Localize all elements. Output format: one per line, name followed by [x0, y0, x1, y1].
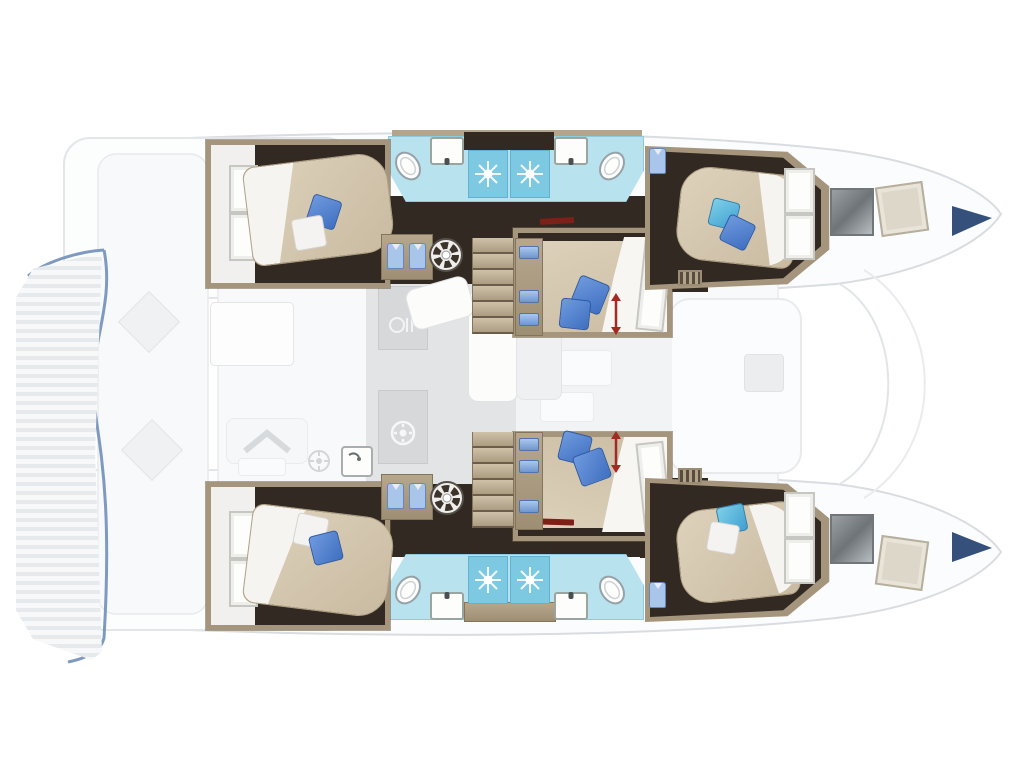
galley-faucet-icon	[343, 448, 371, 475]
chevron-icon	[227, 419, 307, 463]
shirt-locker-icon	[649, 582, 666, 608]
galley-sink	[341, 446, 373, 477]
white-pillow	[290, 214, 327, 251]
hull-window-upper	[830, 188, 874, 236]
lower-sink-left	[430, 592, 464, 620]
lower-toilet-right	[590, 568, 634, 612]
towel-shelf-item	[519, 500, 539, 513]
deck-arc-outer	[864, 270, 925, 498]
blue-pillow	[559, 298, 592, 331]
towel-shelf-item	[519, 246, 539, 259]
upper-sink-right	[554, 137, 588, 165]
wardrobe-shirt	[387, 483, 404, 509]
lower-sink-right	[554, 592, 588, 620]
red-wall-marker-lower	[540, 518, 574, 525]
deck-arc-inner	[838, 283, 888, 485]
lower-left-cabin	[206, 482, 390, 630]
shower-head-icon	[511, 151, 549, 197]
catamaran-floor-plan	[0, 0, 1024, 768]
galley-counter-bottom	[378, 390, 428, 464]
bench-table	[238, 458, 286, 476]
exterior-grill-burner-icon	[306, 448, 332, 474]
companionway-stairs-upper	[472, 238, 514, 334]
lower-toilet-left	[386, 568, 430, 612]
upper-sink-left	[430, 137, 464, 165]
hull-window-lower	[830, 514, 874, 564]
cabin-door-panel	[784, 538, 815, 584]
towel-shelf-item	[519, 438, 539, 451]
cabin-door-panel	[784, 214, 815, 260]
deck-hatch-lower	[875, 535, 929, 591]
upper-toilet-left	[386, 144, 430, 188]
upper-left-cabin	[206, 140, 390, 288]
lower-right-cabin	[645, 478, 835, 622]
shower-head-icon	[511, 557, 549, 603]
deck-hatch-upper	[875, 181, 929, 237]
saloon-chaise-ghost	[516, 330, 562, 400]
upper-shower-lintel	[464, 132, 554, 150]
slatted-platform	[16, 248, 102, 660]
side-deck-ghost	[98, 154, 208, 614]
shower-head-icon	[469, 557, 507, 603]
towel-shelf-item	[519, 460, 539, 473]
shirt-locker-icon	[649, 148, 666, 174]
red-adjust-arrow	[609, 293, 623, 335]
burner-icon	[379, 391, 427, 463]
lower-shower-left	[468, 556, 508, 604]
white-pillow	[706, 521, 741, 556]
towel-shelf-item	[519, 313, 539, 326]
lower-shower-lintel	[464, 602, 556, 622]
wardrobe-shirt	[409, 483, 426, 509]
wardrobe-shirt	[387, 243, 404, 269]
forward-pod-table	[744, 354, 784, 392]
washing-machine-lower	[428, 479, 466, 517]
washing-machine-upper	[427, 236, 465, 274]
upper-toilet-right	[590, 144, 634, 188]
towel-shelf-item	[519, 290, 539, 303]
companionway-stairs-lower	[472, 432, 514, 528]
cabin-door-panel	[784, 168, 815, 214]
lower-shower-right	[510, 556, 550, 604]
upper-shower-right	[510, 150, 550, 198]
cabin-door-panel	[784, 492, 815, 538]
cockpit-dining-table	[210, 302, 294, 366]
vent-grille-upper	[678, 270, 702, 286]
red-adjust-arrow	[609, 431, 623, 473]
upper-shower-left	[468, 150, 508, 198]
shower-head-icon	[469, 151, 507, 197]
wardrobe-shirt	[409, 243, 426, 269]
upper-right-cabin	[645, 146, 835, 290]
vent-grille-lower	[678, 468, 702, 484]
